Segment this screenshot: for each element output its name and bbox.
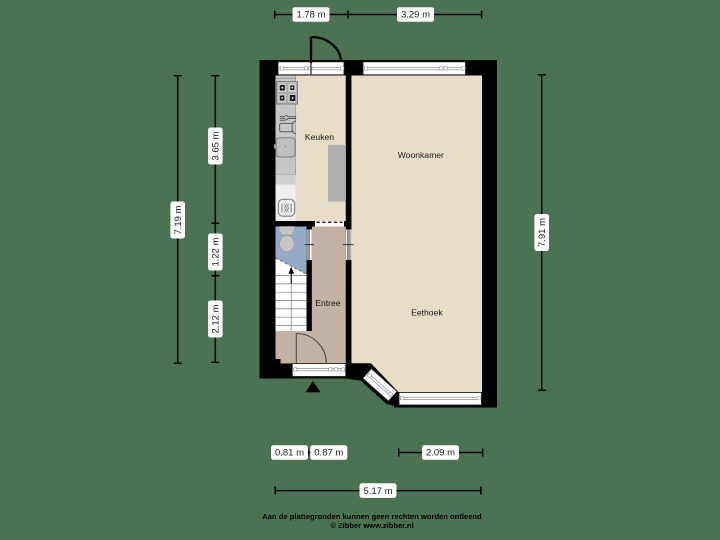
svg-text:Woonkamer: Woonkamer [398,150,444,160]
svg-text:3.29 m: 3.29 m [401,10,430,21]
svg-text:2.12 m: 2.12 m [211,304,222,333]
svg-text:1.22 m: 1.22 m [211,237,222,266]
svg-text:3.65 m: 3.65 m [211,131,222,160]
svg-text:7.19 m: 7.19 m [173,205,184,234]
svg-text:Aan de plattegronden kunnen ge: Aan de plattegronden kunnen geen rechten… [262,512,482,521]
svg-text:1.78 m: 1.78 m [296,10,325,21]
svg-text:© Zibber www.zibber.nl: © Zibber www.zibber.nl [330,521,413,530]
svg-text:Keuken: Keuken [305,132,334,142]
svg-text:2.09 m: 2.09 m [426,448,455,459]
svg-text:0.81 m: 0.81 m [275,448,304,459]
svg-text:7.91 m: 7.91 m [537,218,548,247]
svg-text:Eethoek: Eethoek [411,307,443,317]
svg-text:0.87 m: 0.87 m [314,448,343,459]
svg-text:Entree: Entree [315,298,341,308]
svg-text:5.17 m: 5.17 m [363,486,392,497]
